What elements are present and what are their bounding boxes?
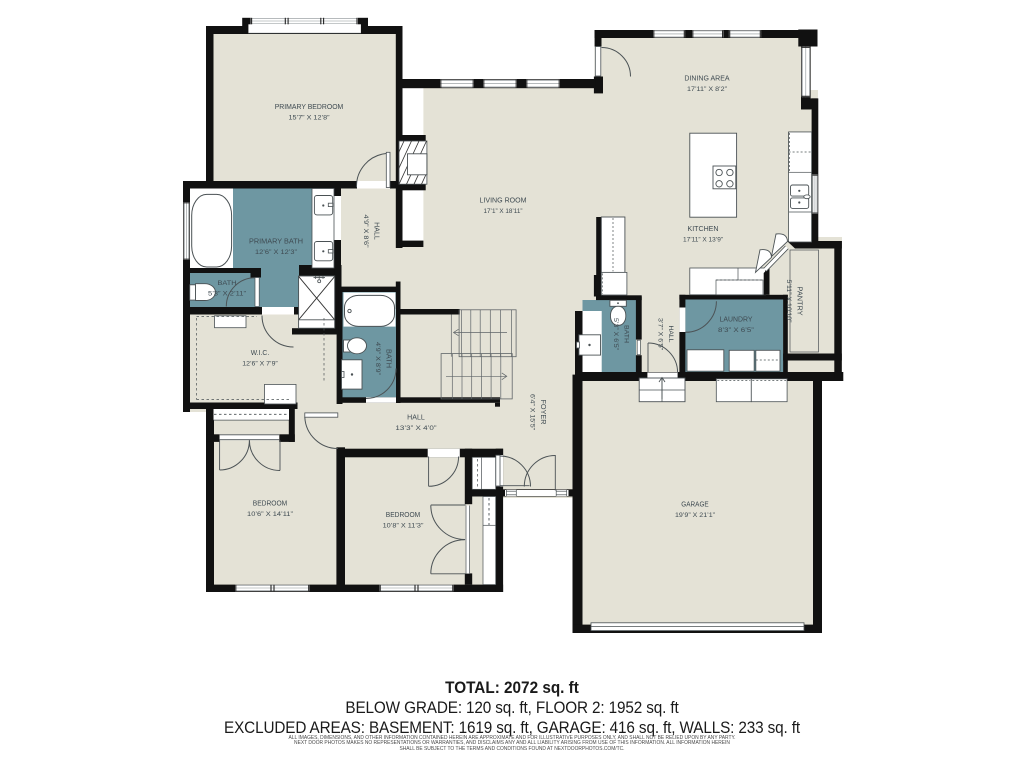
svg-text:10’6” X 14’11”: 10’6” X 14’11” [247,511,293,518]
svg-text:12’6” X 12’3”: 12’6” X 12’3” [255,249,297,256]
svg-text:3’7” X 6’5”: 3’7” X 6’5” [657,318,664,350]
svg-text:10’8” X 11’3”: 10’8” X 11’3” [383,523,424,530]
svg-text:17’11” X 13’9”: 17’11” X 13’9” [683,237,723,244]
svg-text:BEDROOM: BEDROOM [253,501,288,508]
svg-text:DINING AREA: DINING AREA [684,76,730,83]
svg-text:BATH: BATH [385,349,392,368]
svg-text:HALL: HALL [373,222,380,240]
svg-text:PRIMARY BEDROOM: PRIMARY BEDROOM [275,104,344,111]
svg-text:4’9” X 8’6”: 4’9” X 8’6” [362,215,369,248]
svg-text:13’3” X 4’0”: 13’3” X 4’0” [395,425,436,432]
svg-text:8’3” X 6’5”: 8’3” X 6’5” [718,327,754,334]
svg-text:5’3” X 6’5”: 5’3” X 6’5” [612,318,619,350]
svg-text:FOYER: FOYER [539,400,546,425]
svg-text:4’9” X 8’9”: 4’9” X 8’9” [374,342,381,375]
svg-text:KITCHEN: KITCHEN [688,226,719,233]
svg-text:6’4” X 15’5”: 6’4” X 15’5” [529,394,536,430]
svg-text:W.I.C.: W.I.C. [251,350,269,357]
svg-text:HALL: HALL [667,326,674,343]
svg-text:BATH: BATH [623,325,630,343]
svg-text:19’9” X 21’1”: 19’9” X 21’1” [675,512,715,519]
svg-text:GARAGE: GARAGE [681,502,709,509]
svg-text:17’11” X 8’2”: 17’11” X 8’2” [687,86,727,93]
svg-text:LAUNDRY: LAUNDRY [720,317,753,324]
svg-text:5’11” X 10’10”: 5’11” X 10’10” [785,280,792,323]
svg-text:PRIMARY BATH: PRIMARY BATH [249,238,303,245]
svg-text:5’3” X 2’11”: 5’3” X 2’11” [208,292,246,298]
svg-text:BEDROOM: BEDROOM [386,512,421,519]
svg-text:BATH: BATH [218,280,237,287]
svg-text:PANTRY: PANTRY [796,287,803,316]
svg-text:HALL: HALL [407,415,425,422]
svg-text:12’6” X 7’9”: 12’6” X 7’9” [242,361,278,368]
svg-text:LIVING ROOM: LIVING ROOM [480,198,527,205]
svg-text:15’7” X 12’8”: 15’7” X 12’8” [289,114,330,121]
svg-text:17’1” X 18’11”: 17’1” X 18’11” [484,208,523,215]
